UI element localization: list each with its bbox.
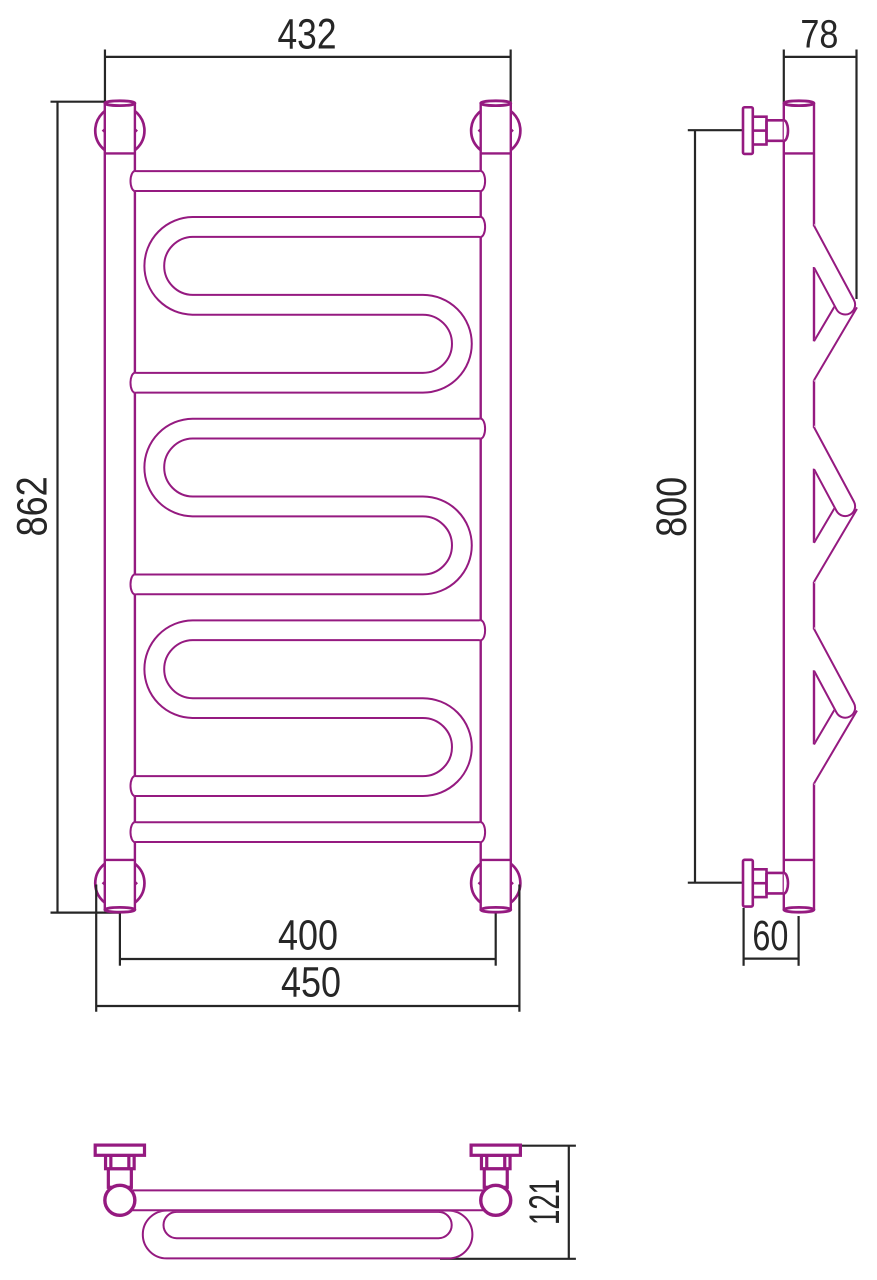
svg-text:400: 400 xyxy=(278,911,338,959)
svg-text:121: 121 xyxy=(521,1179,569,1225)
svg-text:60: 60 xyxy=(752,912,788,960)
svg-text:78: 78 xyxy=(800,13,838,57)
svg-text:432: 432 xyxy=(278,10,337,58)
svg-text:800: 800 xyxy=(648,477,696,537)
svg-text:862: 862 xyxy=(9,476,57,536)
svg-text:450: 450 xyxy=(281,959,341,1007)
